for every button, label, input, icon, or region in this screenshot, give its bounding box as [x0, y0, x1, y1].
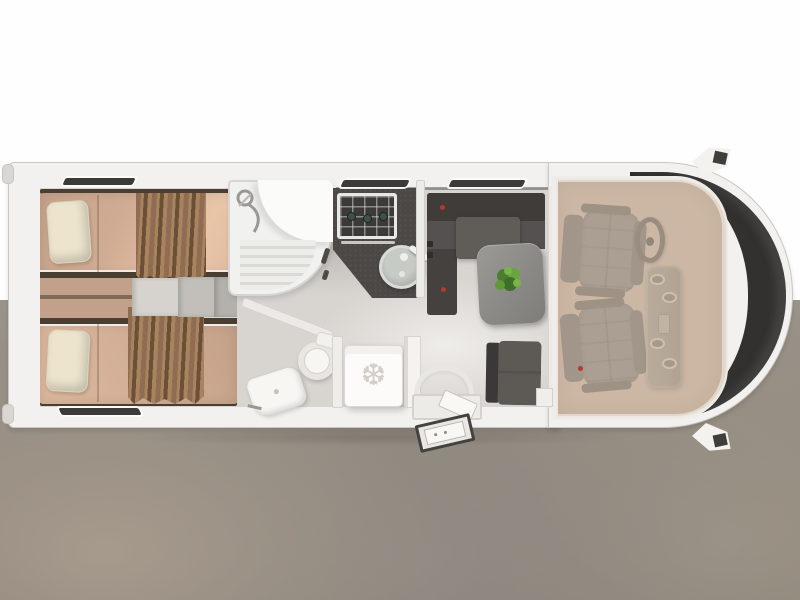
hob-burner: [347, 212, 356, 221]
chair-seat: [497, 341, 541, 406]
window-bedroom-top: [62, 178, 135, 185]
hob-lid-handle: [341, 241, 395, 244]
sofa-accent-dot: [441, 287, 446, 292]
drop-down-bed-overlay: [556, 178, 728, 418]
shower-tray: [240, 240, 316, 290]
sink-tap-base: [400, 253, 408, 261]
window-kitchen: [340, 180, 409, 187]
snowflake-icon: ❆: [361, 361, 386, 391]
mirror-glass: [713, 151, 728, 165]
pillow: [45, 329, 90, 393]
shower-head-icon: [232, 186, 276, 242]
hob-burner: [379, 212, 388, 221]
sink-drain: [399, 271, 405, 277]
basin-drain: [273, 389, 279, 395]
mattress-seam: [97, 195, 99, 273]
refrigerator: ❆: [344, 345, 403, 407]
rear-corner-bumper-top: [2, 164, 14, 184]
mirror-glass: [713, 433, 728, 447]
privacy-curtain: [128, 307, 204, 404]
table-plant-icon: [490, 262, 528, 300]
bedroom-step: [178, 277, 214, 317]
side-ledge: [536, 388, 553, 407]
rear-corner-bumper-bottom: [2, 404, 14, 424]
kitchen-dinette-partition: [416, 180, 425, 298]
mattress-seam: [97, 324, 99, 402]
window-dinette: [448, 180, 525, 187]
bedroom-step: [132, 278, 178, 316]
motorhome-floorplan-image: ❆: [0, 0, 800, 600]
bed-center-seam: [40, 295, 132, 299]
sofa-latch: [427, 241, 433, 247]
sofa-latch: [427, 252, 433, 258]
privacy-curtain: [136, 193, 206, 281]
washroom-side-wall: [332, 336, 343, 408]
seat-accent-dot: [578, 366, 583, 371]
pillow: [46, 200, 92, 265]
window-bedroom-bottom: [58, 408, 141, 415]
dinette-chair: [485, 341, 541, 406]
sofa-accent-dot: [440, 205, 445, 210]
hob-burner: [363, 214, 372, 223]
gas-hob: [337, 193, 397, 239]
